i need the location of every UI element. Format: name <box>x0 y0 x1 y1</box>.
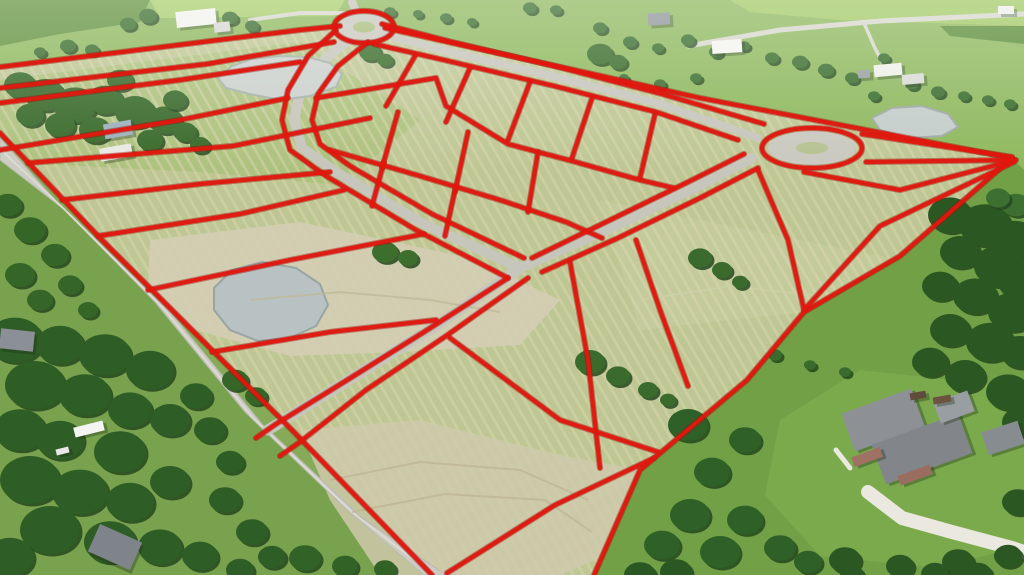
tree <box>994 545 1022 567</box>
tree <box>839 367 851 377</box>
tree <box>14 217 46 243</box>
tree <box>922 272 958 301</box>
tree <box>94 431 146 473</box>
tree <box>78 302 98 318</box>
tree <box>36 326 84 364</box>
tree <box>986 188 1010 207</box>
tree <box>727 506 763 535</box>
tree <box>216 451 244 473</box>
tree <box>150 466 190 498</box>
tree <box>0 456 60 504</box>
tree <box>694 458 730 487</box>
tree <box>606 366 630 385</box>
tree <box>638 382 658 398</box>
tree <box>108 392 152 427</box>
tree <box>764 535 796 561</box>
tree <box>58 275 82 294</box>
tree <box>79 334 131 376</box>
tree <box>700 536 740 568</box>
tree <box>804 360 816 370</box>
tree <box>150 404 190 436</box>
tree <box>660 394 676 407</box>
tree <box>138 529 182 564</box>
tree <box>729 427 761 453</box>
tree <box>41 244 69 266</box>
tree <box>644 531 680 560</box>
aerial-subdivision-photo <box>0 0 1024 575</box>
tree <box>688 248 712 267</box>
tree <box>794 551 822 573</box>
tree <box>126 351 174 389</box>
tree <box>5 263 35 287</box>
scene-canvas <box>0 0 1024 575</box>
tree <box>59 374 111 416</box>
tree <box>670 499 710 531</box>
tree <box>182 542 218 571</box>
tree <box>398 250 418 266</box>
tree <box>732 276 748 289</box>
tree <box>209 487 241 513</box>
tree <box>27 290 53 311</box>
tree <box>945 360 985 392</box>
tree <box>180 383 212 409</box>
tree <box>194 417 226 443</box>
house-left-edge <box>0 328 35 351</box>
east-fan-line-2 <box>866 160 1014 162</box>
tree <box>258 546 286 568</box>
tree <box>5 361 65 409</box>
tree <box>930 314 970 346</box>
tree <box>236 519 268 545</box>
tree <box>289 545 321 571</box>
tree <box>912 348 948 377</box>
tree <box>940 236 980 268</box>
tree <box>106 483 154 521</box>
tree <box>712 262 732 278</box>
